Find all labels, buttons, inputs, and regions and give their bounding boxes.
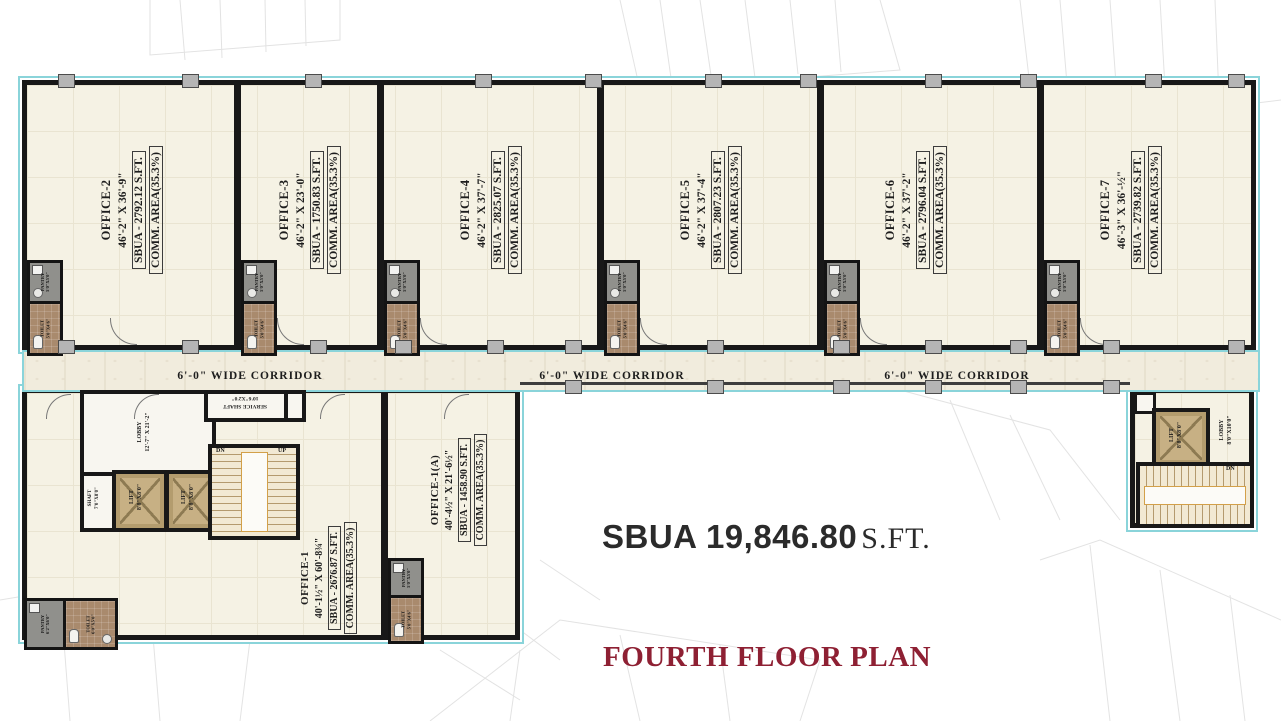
office-name: OFFICE-1 bbox=[299, 551, 311, 605]
office-dims: 46'-2" X 37'-2" bbox=[901, 172, 913, 247]
column bbox=[1228, 340, 1245, 354]
pantry-label: PANTRY5'0"X5'0" bbox=[1043, 267, 1081, 297]
pantry-label: PANTRY5'0"X5'0" bbox=[383, 267, 421, 297]
office-sbua: SBUA - 2796.04 S.FT. bbox=[916, 151, 930, 269]
office-comm-area: COMM. AREA(35.3%) bbox=[344, 522, 357, 635]
column bbox=[707, 380, 724, 394]
pantry-toilet-office-1a: PANTRY5'0"X5'0" TOILET5'0"X4'6" bbox=[388, 558, 424, 644]
column bbox=[305, 74, 322, 88]
lift-right-label: LIFT8'0"X8'0" bbox=[1161, 413, 1191, 457]
lift-1-label: LIFT8'0"X8'0" bbox=[121, 475, 151, 519]
office-sbua: SBUA - 1750.83 S.FT. bbox=[310, 151, 324, 269]
office-dims: 46'-2" X 23'-0" bbox=[295, 172, 307, 247]
toilet-label: TOILET6'0"X5'0" bbox=[68, 600, 114, 649]
office-sbua: SBUA - 2739.82 S.FT. bbox=[1131, 151, 1145, 269]
office-dims: 46'-2" X 36'-9" bbox=[117, 172, 129, 247]
column bbox=[925, 74, 942, 88]
office-1a-label: OFFICE-1(A) 40'-4½" X 21'-6½" SBUA - 145… bbox=[411, 425, 505, 555]
office-5-label: OFFICE-5 46'-2" X 37'-4" SBUA - 2807.23 … bbox=[663, 115, 757, 305]
office-4-label: OFFICE-4 46'-2" X 37'-7" SBUA - 2825.07 … bbox=[443, 115, 537, 305]
pantry-label: PANTRY5'0"X5'0" bbox=[603, 267, 641, 297]
column bbox=[487, 340, 504, 354]
column bbox=[1020, 74, 1037, 88]
pantry-label: PANTRY5'0"X5'0" bbox=[26, 267, 64, 297]
column bbox=[58, 74, 75, 88]
column bbox=[1103, 340, 1120, 354]
toilet-room: TOILET5'0"X4'6" bbox=[607, 304, 637, 353]
toilet-room: TOILET5'0"X4'6" bbox=[244, 304, 274, 353]
pantry-toilet-office-1: PANTRY6'2"X6'0" TOILET6'0"X5'0" bbox=[24, 598, 118, 650]
office-name: OFFICE-1(A) bbox=[429, 455, 441, 525]
wall-office3-4 bbox=[377, 85, 384, 345]
column bbox=[182, 340, 199, 354]
toilet-label: TOILET5'0"X4'6" bbox=[385, 605, 428, 635]
column bbox=[310, 340, 327, 354]
column bbox=[925, 380, 942, 394]
staircase-right bbox=[1136, 462, 1254, 528]
corridor-label: 6'-0" WIDE CORRIDOR bbox=[884, 370, 1029, 382]
column bbox=[925, 340, 942, 354]
office-3-label: OFFICE-3 46'-2" X 23'-0" SBUA - 1750.83 … bbox=[262, 115, 356, 305]
toilet-room: TOILET6'0"X5'0" bbox=[66, 601, 115, 647]
pantry-room: PANTRY5'0"X5'0" bbox=[1047, 263, 1077, 304]
column bbox=[182, 74, 199, 88]
pantry-room: PANTRY5'0"X5'0" bbox=[30, 263, 60, 304]
pantry-room: PANTRY5'0"X5'0" bbox=[387, 263, 417, 304]
total-sbua-unit: S.FT. bbox=[861, 522, 930, 555]
office-comm-area: COMM. AREA(35.3%) bbox=[474, 434, 487, 547]
shaft-label: SHAFT7'0"X8'0" bbox=[84, 476, 104, 520]
total-sbua: SBUA 19,846.80 S.FT. bbox=[602, 518, 931, 556]
office-name: OFFICE-4 bbox=[458, 180, 473, 241]
total-sbua-value: SBUA 19,846.80 bbox=[602, 518, 857, 555]
column bbox=[1145, 74, 1162, 88]
pantry-room: PANTRY5'0"X5'0" bbox=[391, 561, 421, 598]
column bbox=[833, 380, 850, 394]
wall-office5-6 bbox=[817, 85, 824, 345]
pantry-toilet-office-5: PANTRY5'0"X5'0" TOILET5'0"X4'6" bbox=[604, 260, 640, 356]
pantry-toilet-office-7: PANTRY5'0"X5'0" TOILET5'0"X4'6" bbox=[1044, 260, 1080, 356]
pantry-room: PANTRY5'0"X5'0" bbox=[607, 263, 637, 304]
office-dims: 46'-2" X 37'-4" bbox=[696, 172, 708, 247]
office-comm-area: COMM. AREA(35.3%) bbox=[1148, 146, 1162, 274]
office-name: OFFICE-6 bbox=[883, 180, 898, 241]
column bbox=[565, 380, 582, 394]
office-sbua: SBUA - 2676.87 S.FT. bbox=[328, 526, 341, 630]
stair-landing bbox=[241, 452, 268, 532]
page-title: FOURTH FLOOR PLAN bbox=[603, 641, 931, 674]
floor-plan-canvas: OFFICE-2 46'-2" X 36'-9" SBUA - 2792.12 … bbox=[0, 0, 1281, 721]
pantry-label: PANTRY5'0"X5'0" bbox=[389, 563, 423, 593]
duct-cell bbox=[284, 390, 306, 422]
corridor-label: 6'-0" WIDE CORRIDOR bbox=[177, 370, 322, 382]
column bbox=[1010, 340, 1027, 354]
wall-office2-3 bbox=[234, 85, 241, 345]
toilet-label: TOILET5'0"X4'6" bbox=[21, 314, 70, 344]
wall-office4-5 bbox=[597, 85, 604, 345]
toilet-room: TOILET5'0"X4'6" bbox=[30, 304, 60, 353]
office-comm-area: COMM. AREA(35.3%) bbox=[508, 146, 522, 274]
office-dims: 40'-4½" X 21'-6½" bbox=[444, 450, 455, 531]
pantry-label: PANTRY5'0"X5'0" bbox=[823, 267, 861, 297]
office-sbua: SBUA - 1458.90 S.FT. bbox=[458, 438, 471, 542]
office-comm-area: COMM. AREA(35.3%) bbox=[728, 146, 742, 274]
corridor-label: 6'-0" WIDE CORRIDOR bbox=[539, 370, 684, 382]
office-comm-area: COMM. AREA(35.3%) bbox=[933, 146, 947, 274]
toilet-room: TOILET5'0"X4'6" bbox=[1047, 304, 1077, 353]
office-6-label: OFFICE-6 46'-2" X 37'-2" SBUA - 2796.04 … bbox=[868, 115, 962, 305]
pantry-room: PANTRY5'0"X5'0" bbox=[827, 263, 857, 304]
office-sbua: SBUA - 2825.07 S.FT. bbox=[491, 151, 505, 269]
column bbox=[395, 340, 412, 354]
office-name: OFFICE-2 bbox=[99, 180, 114, 241]
pantry-room: PANTRY6'2"X6'0" bbox=[27, 601, 66, 647]
wall-office1-1a bbox=[381, 392, 388, 638]
office-7-label: OFFICE-7 46'-3" X 36'-½" SBUA - 2739.82 … bbox=[1083, 115, 1177, 305]
stair-dn-label: DN bbox=[1226, 466, 1235, 472]
column bbox=[58, 340, 75, 354]
office-sbua: SBUA - 2792.12 S.FT. bbox=[132, 151, 146, 269]
service-shaft-label: SERVICE SHAFT10'6"X2'0" bbox=[206, 394, 284, 410]
office-name: OFFICE-7 bbox=[1098, 180, 1113, 241]
pantry-label: PANTRY6'2"X6'0" bbox=[22, 606, 68, 642]
office-2-label: OFFICE-2 46'-2" X 36'-9" SBUA - 2792.12 … bbox=[84, 115, 178, 305]
service-shaft-room: SERVICE SHAFT10'6"X2'0" bbox=[204, 390, 294, 422]
lobby-right-label: LOBBY8'0"X10'0" bbox=[1214, 400, 1238, 460]
stair-landing bbox=[1144, 486, 1246, 505]
lift-2-label: LIFT8'0"X8'0" bbox=[173, 475, 203, 519]
column bbox=[1228, 74, 1245, 88]
stair-dn-label: DN bbox=[216, 448, 225, 454]
office-dims: 46'-3" X 36'-½" bbox=[1116, 171, 1128, 249]
column bbox=[1103, 380, 1120, 394]
office-comm-area: COMM. AREA(35.3%) bbox=[149, 146, 163, 274]
office-comm-area: COMM. AREA(35.3%) bbox=[327, 146, 341, 274]
stair-up-label: UP bbox=[278, 448, 286, 454]
lobby-label: LOBBY12'-7" X 21'-2" bbox=[129, 397, 159, 467]
office-sbua: SBUA - 2807.23 S.FT. bbox=[711, 151, 725, 269]
office-dims: 40'-1½" X 60'-8¾" bbox=[314, 538, 325, 619]
column bbox=[475, 74, 492, 88]
column bbox=[707, 340, 724, 354]
column bbox=[565, 340, 582, 354]
column bbox=[1010, 380, 1027, 394]
wall-office6-7 bbox=[1037, 85, 1044, 345]
column bbox=[833, 340, 850, 354]
office-dims: 46'-2" X 37'-7" bbox=[476, 172, 488, 247]
office-1-label: OFFICE-1 40'-1½" X 60'-8¾" SBUA - 2676.8… bbox=[281, 518, 375, 638]
office-name: OFFICE-3 bbox=[277, 180, 292, 241]
column bbox=[585, 74, 602, 88]
column bbox=[705, 74, 722, 88]
toilet-room: TOILET5'0"X4'6" bbox=[391, 598, 421, 641]
column bbox=[800, 74, 817, 88]
corridor-south-wall bbox=[520, 382, 1130, 385]
office-name: OFFICE-5 bbox=[678, 180, 693, 241]
